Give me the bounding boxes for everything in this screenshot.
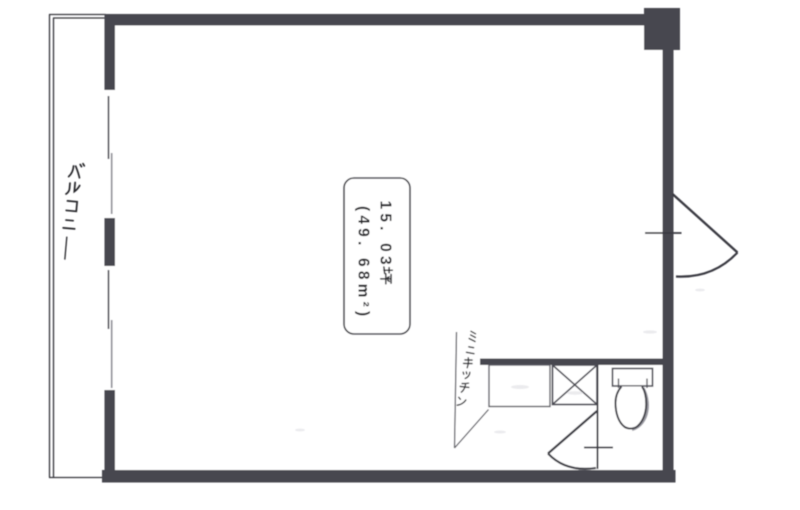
svg-text:(49. 68m²): (49. 68m²)	[355, 206, 372, 320]
svg-text:15. 03: 15. 03	[377, 201, 394, 269]
